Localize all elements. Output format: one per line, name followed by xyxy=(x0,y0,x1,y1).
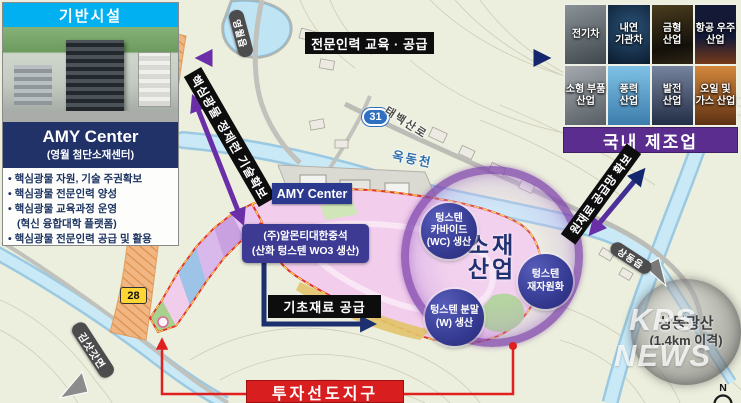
node-label: 카바이드 xyxy=(431,225,468,237)
panel-bullet-list: • 핵심광물 자원, 기술 주권확보 • 핵심광물 전문인력 양성 • 핵심광물… xyxy=(3,168,178,247)
photo-building-main xyxy=(66,40,124,110)
domestic-manufacturing-banner: 국내 제조업 xyxy=(563,127,738,153)
panel-title: 기반시설 xyxy=(3,3,178,27)
infrastructure-panel: 기반시설 AMY Center (영월 첨단소재센터) • 핵심광물 자원, 기… xyxy=(2,2,179,246)
photo-building-left xyxy=(14,65,53,105)
node-tungsten-powder: 텅스텐 분말 (W) 생산 xyxy=(425,289,484,346)
tile-label: 오일 및 xyxy=(700,84,730,96)
tile-label: 풍력 xyxy=(620,84,638,96)
industry-tile-grid: 전기차 내연 기관차 금형 산업 항공 우주 산업 소형 부품 산업 풍력 산업… xyxy=(563,3,738,127)
tile-label: 발전 xyxy=(663,84,681,96)
hub-title-line2: 산업 xyxy=(468,257,516,281)
bullet-item-sub: (혁신 융합대학 플랫폼) xyxy=(8,217,174,232)
industry-tile-ev: 전기차 xyxy=(565,5,606,64)
infographic-canvas: 소재 산업 텅스텐 카바이드 (WC) 생산 텅스텐 재자원화 텅스텐 분말 (… xyxy=(0,0,741,403)
tile-label: 산업 xyxy=(663,35,681,47)
node-label: 재자원화 xyxy=(527,282,564,294)
tile-label: 내연 xyxy=(620,23,638,35)
node-label: 텅스텐 xyxy=(532,269,560,281)
node-tungsten-carbide: 텅스텐 카바이드 (WC) 생산 xyxy=(421,203,477,259)
compass-north-label: N xyxy=(716,382,730,394)
node-label: (WC) 생산 xyxy=(427,237,472,249)
industry-tile-oil-gas: 오일 및 가스 산업 xyxy=(695,66,736,125)
investment-zone-label: 투자선도지구 xyxy=(246,380,404,403)
tile-label: 기관차 xyxy=(615,35,643,47)
amy-center-heading: AMY Center (영월 첨단소재센터) xyxy=(3,122,178,168)
almonty-product: (산화 텅스텐 WO3 생산) xyxy=(252,244,359,259)
industry-tile-power: 발전 산업 xyxy=(652,66,693,125)
amy-center-photo xyxy=(3,27,178,122)
bullet-item: • 핵심광물 교육과정 운영 xyxy=(8,202,174,217)
amy-center-subtitle: (영월 첨단소재센터) xyxy=(47,147,134,162)
node-label: (W) 생산 xyxy=(436,318,473,330)
tile-label: 소형 부품 xyxy=(566,84,606,96)
almonty-plant-label: (주)알몬티대한중석 (산화 텅스텐 WO3 생산) xyxy=(242,224,369,263)
talent-supply-label: 전문인력 교육 · 공급 xyxy=(305,32,434,54)
node-label: 텅스텐 xyxy=(435,213,463,225)
industry-tile-wind: 풍력 산업 xyxy=(608,66,649,125)
route-28-sign: 28 xyxy=(120,287,147,304)
industry-tile-small-parts: 소형 부품 산업 xyxy=(565,66,606,125)
bullet-item: • 핵심광물 전문인력 양성 xyxy=(8,187,174,202)
node-tungsten-recycling: 텅스텐 재자원화 xyxy=(518,254,573,309)
almonty-name: (주)알몬티대한중석 xyxy=(263,229,347,244)
tile-label: 산업 xyxy=(663,96,681,108)
amy-center-map-label: AMY Center xyxy=(272,183,352,204)
node-label: 텅스텐 분말 xyxy=(430,305,479,317)
tile-label: 가스 산업 xyxy=(696,96,736,108)
industry-tile-aerospace: 항공 우주 산업 xyxy=(695,5,736,64)
industry-tile-mold: 금형 산업 xyxy=(652,5,693,64)
tile-label: 항공 우주 xyxy=(696,23,736,35)
base-material-label: 기초재료 공급 xyxy=(268,295,381,318)
tile-label: 산업 xyxy=(706,35,724,47)
photo-road xyxy=(3,111,178,122)
tile-label: 산업 xyxy=(576,96,594,108)
photo-building-right xyxy=(138,52,172,107)
tile-label: 산업 xyxy=(620,96,638,108)
industry-tile-combustion: 내연 기관차 xyxy=(608,5,649,64)
tile-label: 전기차 xyxy=(572,29,600,41)
bullet-item: • 핵심광물 전문인력 공급 및 활용 xyxy=(8,232,174,247)
kps-news-watermark: KPS NEWS xyxy=(584,302,741,374)
bullet-item: • 핵심광물 자원, 기술 주권확보 xyxy=(8,172,174,187)
tile-label: 금형 xyxy=(663,23,681,35)
amy-center-name: AMY Center xyxy=(42,128,138,147)
